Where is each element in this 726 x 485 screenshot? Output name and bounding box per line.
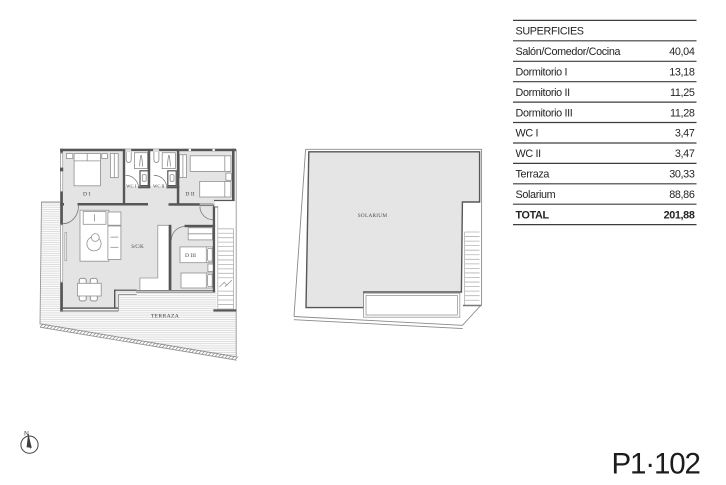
svg-text:11,25: 11,25	[670, 87, 695, 99]
svg-text:WC II: WC II	[516, 148, 541, 160]
svg-text:SOLARIUM: SOLARIUM	[358, 213, 388, 219]
svg-text:40,04: 40,04	[669, 46, 695, 58]
svg-text:11,28: 11,28	[670, 107, 695, 119]
svg-text:WC II: WC II	[153, 184, 165, 189]
svg-text:SUPERFICIES: SUPERFICIES	[516, 26, 584, 38]
svg-text:30,33: 30,33	[669, 169, 695, 181]
svg-text:D III: D III	[185, 253, 196, 259]
svg-text:WC I: WC I	[516, 128, 539, 140]
svg-text:13,18: 13,18	[669, 67, 695, 79]
svg-text:Dormitorio I: Dormitorio I	[516, 67, 568, 79]
svg-text:TOTAL: TOTAL	[516, 209, 550, 221]
svg-text:Dormitorio III: Dormitorio III	[516, 107, 573, 119]
svg-text:Dormitorio II: Dormitorio II	[516, 87, 570, 99]
svg-text:S/C/K: S/C/K	[131, 245, 144, 250]
svg-text:3,47: 3,47	[675, 128, 695, 140]
svg-text:88,86: 88,86	[669, 189, 695, 201]
svg-text:WC I: WC I	[126, 184, 137, 189]
svg-text:D II: D II	[185, 191, 194, 197]
svg-text:Terraza: Terraza	[516, 169, 550, 181]
svg-text:TERRAZA: TERRAZA	[151, 313, 180, 319]
svg-text:Solarium: Solarium	[516, 189, 556, 201]
svg-text:Salón/Comedor/Cocina: Salón/Comedor/Cocina	[516, 46, 621, 58]
svg-text:D I: D I	[83, 191, 90, 197]
svg-text:201,88: 201,88	[664, 209, 695, 221]
svg-text:P1·102: P1·102	[612, 447, 700, 480]
svg-text:3,47: 3,47	[675, 148, 695, 160]
svg-text:N: N	[24, 431, 29, 438]
